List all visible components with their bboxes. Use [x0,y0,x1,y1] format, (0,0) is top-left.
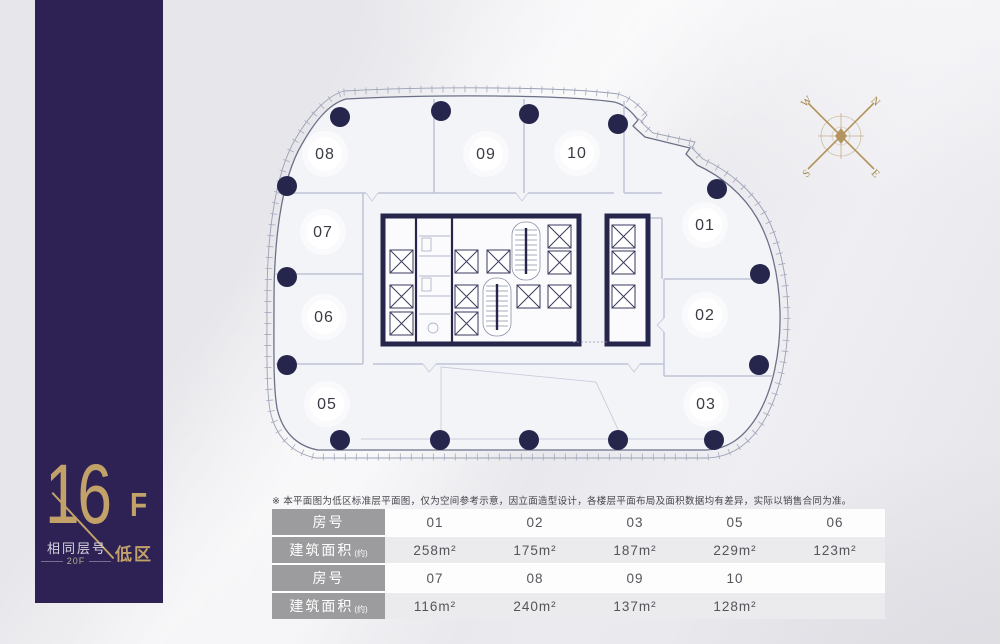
area-value-cell: 229m² [685,537,785,563]
rule-left [41,561,63,562]
column-dot [330,430,350,450]
column-dot [330,107,350,127]
room-07: 07 [300,209,346,255]
area-note: (约) [354,604,367,615]
room-10: 10 [554,130,600,176]
compass-center-diamond [835,128,847,144]
area-value-cell [785,593,885,619]
service-core [383,216,648,344]
area-value-cell: 116m² [385,593,485,619]
room-label: 06 [314,309,334,326]
area-value-cell: 240m² [485,593,585,619]
column-dot [277,176,297,196]
elevator-shaft [455,285,478,308]
column-dot [430,430,450,450]
room-label: 10 [567,145,587,162]
floor-suffix: F [130,486,147,524]
floor-plan: 080910070106020503 [262,82,792,480]
room-number-cell: 07 [385,565,485,591]
area-value-cell: 128m² [685,593,785,619]
room-label: 07 [313,224,333,241]
compass-s: S [800,167,813,180]
elevator-shaft [390,285,413,308]
room-number-cell: 09 [585,565,685,591]
column-dot [608,114,628,134]
elevator-shaft [517,285,540,308]
room-row-header: 房号 [272,509,385,535]
stairwell [512,222,540,280]
elevator-shaft [612,225,635,248]
room-number-cell: 02 [485,509,585,535]
room-number-cell: 08 [485,565,585,591]
room-01: 01 [682,202,728,248]
elevator-shaft [548,251,571,274]
stairwell [483,278,511,336]
same-floor-value: 20F [67,556,86,566]
elevator-shaft [455,312,478,335]
room-03: 03 [683,381,729,427]
row-header-text: 房号 [313,512,345,532]
area-value-cell: 187m² [585,537,685,563]
elevator-shaft [548,225,571,248]
elevator-shaft [390,250,413,273]
room-label: 02 [695,307,715,324]
room-05: 05 [304,381,350,427]
elevator-shaft [612,285,635,308]
disclaimer-note: ※ 本平面图为低区标准层平面图，仅为空间参考示意，因立面造型设计，各楼层平面布局… [272,493,912,507]
elevator-shaft [455,250,478,273]
room-label: 08 [315,146,335,163]
area-row-header: 建筑面积(约) [272,593,385,619]
row-header-text: 房号 [313,568,345,588]
same-floor-label: 相同层号 [47,538,107,557]
area-value-cell: 123m² [785,537,885,563]
floor-badge-band: 16 F 相同层号 20F 低区 [35,0,163,603]
room-02: 02 [682,292,728,338]
compass-rose: W N S E [798,88,890,186]
room-number-cell [785,565,885,591]
room-label: 09 [476,146,496,163]
elevator-shaft [612,251,635,274]
rule-right [89,561,111,562]
row-header-text: 建筑面积 [289,596,353,616]
room-06: 06 [301,294,347,340]
zone-label: 低区 [115,540,153,565]
column-dot [519,430,539,450]
room-09: 09 [463,131,509,177]
elevator-shaft [487,250,510,273]
room-number-cell: 03 [585,509,685,535]
column-dot [277,267,297,287]
room-08: 08 [302,131,348,177]
row-header-text: 建筑面积 [289,540,353,560]
area-table: 房号0102030506建筑面积(约)258m²175m²187m²229m²1… [272,509,885,619]
room-number-cell: 01 [385,509,485,535]
area-row-header: 建筑面积(约) [272,537,385,563]
room-number-cell: 10 [685,565,785,591]
area-value-cell: 258m² [385,537,485,563]
room-number-cell: 05 [685,509,785,535]
area-value-cell: 137m² [585,593,685,619]
column-dot [707,179,727,199]
column-dot [431,101,451,121]
area-value-cell: 175m² [485,537,585,563]
column-dot [608,430,628,450]
elevator-shaft [390,312,413,335]
poster-page: 16 F 相同层号 20F 低区 [0,0,1000,644]
room-label: 05 [317,396,337,413]
compass-e: E [869,167,882,180]
room-label: 03 [696,396,716,413]
column-dot [704,430,724,450]
room-number-cell: 06 [785,509,885,535]
room-row-header: 房号 [272,565,385,591]
room-label: 01 [695,217,715,234]
elevator-shaft [548,285,571,308]
area-note: (约) [354,548,367,559]
column-dot [750,264,770,284]
same-floor-value-row: 20F [41,556,111,566]
column-dot [277,355,297,375]
column-dot [749,355,769,375]
column-dot [519,104,539,124]
